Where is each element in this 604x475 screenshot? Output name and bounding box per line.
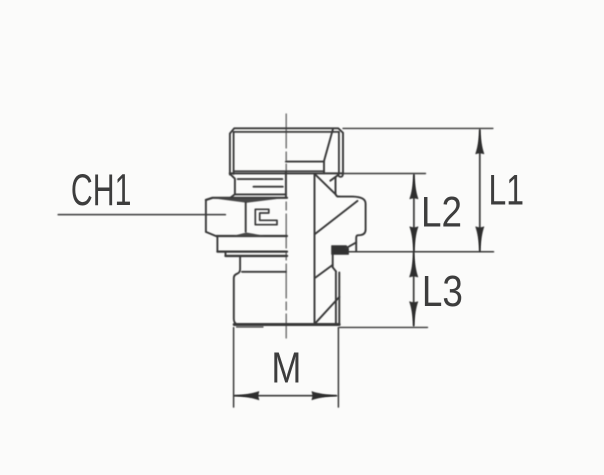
svg-text:CH1: CH1 (71, 166, 131, 215)
svg-text:M: M (271, 344, 301, 393)
svg-text:L2: L2 (421, 188, 462, 236)
svg-text:L1: L1 (489, 166, 525, 214)
svg-text:L3: L3 (422, 268, 463, 316)
